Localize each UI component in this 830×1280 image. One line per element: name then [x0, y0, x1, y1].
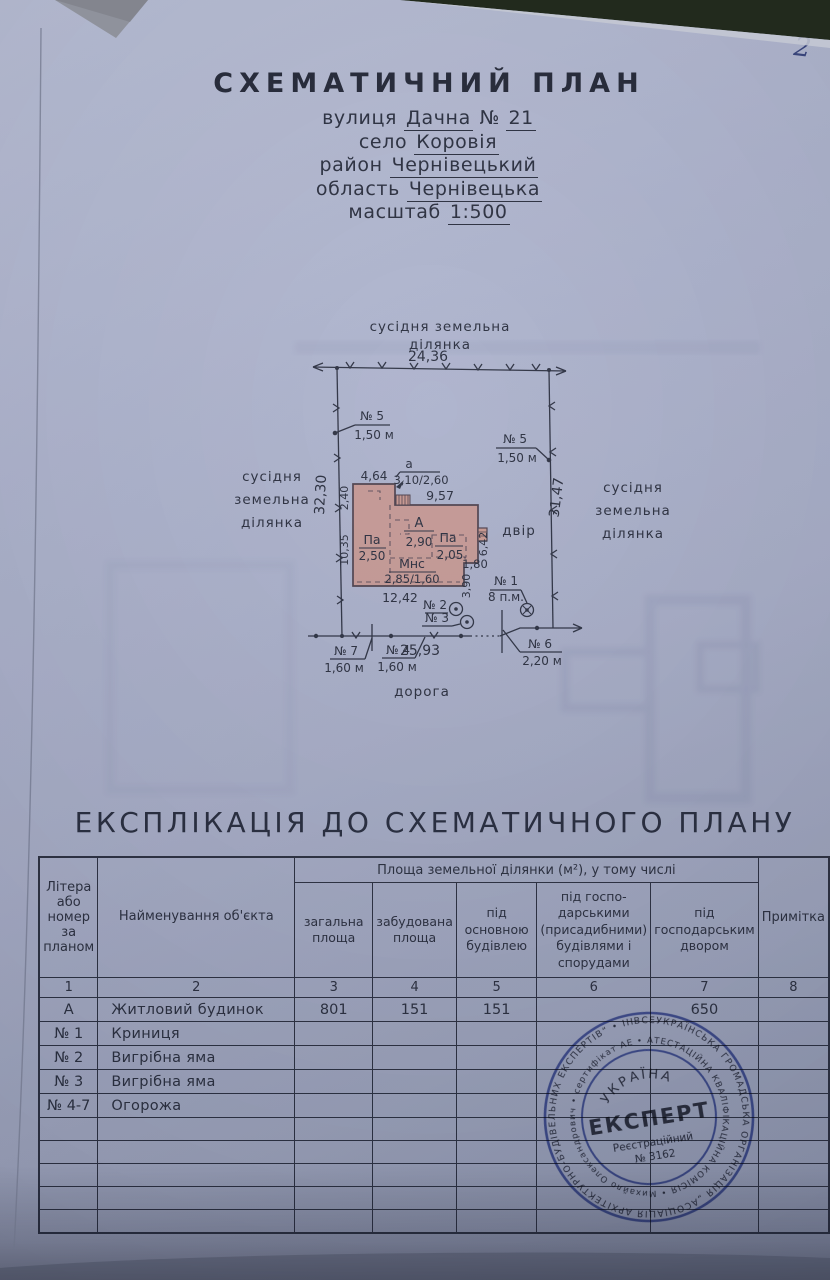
cell-object-name: Житловий будинок	[98, 998, 295, 1022]
cell-value: 151	[456, 998, 536, 1022]
neighbor-right-line3: ділянка	[602, 526, 664, 542]
document-title: СХЕМАТИЧНИЙ ПЛАН	[14, 68, 830, 99]
cell-value	[373, 1070, 457, 1094]
corner-fold	[55, 0, 148, 38]
header-col5: під основною будівлею	[456, 883, 536, 978]
room-pa-right: Па	[439, 530, 456, 545]
street-line: вулицяДачна № 21	[14, 107, 830, 131]
expert-stamp: ВСЕУКРАЇНСЬКА ГРОМАДСЬКА ОРГАНІЗАЦІЯ „АС…	[517, 985, 780, 1248]
house-annex-frac: 3,10/2,60	[393, 473, 448, 487]
house-step-h1: 1,80	[462, 557, 488, 571]
stamp-country: УКРАЇНА	[594, 1062, 678, 1108]
yard-label: двір	[502, 523, 536, 539]
cell-letter: А	[39, 998, 98, 1022]
room-a-val: 2,90	[406, 535, 433, 549]
house-bottom-width: 12,42	[382, 590, 418, 605]
cell-object-name: Криниця	[98, 1022, 295, 1046]
header-col3: загальна площа	[295, 883, 373, 978]
marker-n4-len: 1,60 м	[377, 660, 417, 674]
room-a: А	[415, 516, 424, 531]
cell-value	[456, 1094, 536, 1118]
district-line: районЧернівецький	[14, 154, 830, 178]
scale-label: масштаб	[348, 201, 440, 223]
marker-n3-no: № 3	[425, 611, 449, 625]
room-mns-val: 2,85/1,60	[384, 572, 439, 586]
house-annex-letter: а	[405, 457, 412, 471]
col-num: 6	[537, 978, 651, 998]
house-left-height: 10,35	[338, 534, 351, 566]
cell-value: 801	[295, 998, 373, 1022]
cell-object-name: Вигрібна яма	[98, 1046, 295, 1070]
house-step-h2: 3,90	[460, 574, 473, 599]
neighbor-right-line1: сусідня	[603, 480, 663, 496]
header-col8: Примітка	[758, 857, 829, 978]
region-line: областьЧернівецька	[14, 178, 830, 202]
site-plan-drawing: сусідня земельна ділянка сусідня земельн…	[0, 298, 830, 728]
marker-n1-len: 8 п.м.	[488, 590, 524, 604]
region-label: область	[316, 178, 400, 200]
room-pa-left-val: 2,50	[359, 549, 386, 563]
header-area-span: Площа земельної ділянки (м²), у тому чис…	[295, 857, 759, 883]
marker-n5-right-no: № 5	[503, 432, 527, 446]
cell-object-name: Огорожа	[98, 1094, 295, 1118]
street-number: 21	[506, 107, 535, 131]
village-label: село	[359, 131, 407, 153]
dim-left: 32,30	[312, 474, 330, 515]
explication-title: ЕКСПЛІКАЦІЯ ДО СХЕМАТИЧНОГО ПЛАНУ	[0, 806, 830, 839]
table-header-row-1: Літера або номер за планом Найменування …	[39, 857, 829, 883]
village-line: селоКоровія	[14, 131, 830, 155]
col-num: 5	[456, 978, 536, 998]
marker-n7-no: № 7	[334, 644, 358, 658]
marker-n6-len: 2,20 м	[522, 654, 562, 668]
marker-n5-left-no: № 5	[360, 409, 384, 423]
cell-value	[758, 1046, 829, 1070]
cell-letter: № 2	[39, 1046, 98, 1070]
room-pa-left: Па	[363, 532, 380, 547]
header-col1: Літера або номер за планом	[39, 857, 98, 978]
street-label: вулиця	[322, 107, 397, 129]
paper-edge-highlight	[400, 0, 830, 48]
background-foliage	[400, 0, 830, 40]
cell-letter: № 1	[39, 1022, 98, 1046]
cell-value	[373, 1046, 457, 1070]
house-annex-width: 4,64	[361, 469, 388, 483]
marker-n5-right-len: 1,50 м	[497, 451, 537, 465]
page-bottom-shadow	[0, 1253, 830, 1280]
header-col4: забудована площа	[373, 883, 457, 978]
scale-value: 1:500	[448, 201, 510, 225]
cell-value	[295, 1046, 373, 1070]
room-mns: Мнс	[399, 556, 425, 571]
house-main-width: 9,57	[426, 488, 454, 503]
house-right-height: 6,42	[477, 532, 490, 557]
cell-letter: № 3	[39, 1070, 98, 1094]
scale-line: масштаб1:500	[14, 201, 830, 225]
district-value: Чернівецький	[390, 154, 539, 178]
marker-n5-left-len: 1,50 м	[354, 428, 394, 442]
cell-object-name: Вигрібна яма	[98, 1070, 295, 1094]
marker-n6-no: № 6	[528, 637, 552, 651]
cell-value	[758, 1022, 829, 1046]
district-label: район	[320, 154, 383, 176]
corner-fold-shadow	[55, 0, 148, 22]
room-pa-right-val: 2,05	[437, 548, 464, 562]
neighbor-left-line3: ділянка	[241, 515, 303, 531]
street-value: Дачна	[404, 107, 473, 131]
document-photo: 2 СХЕМАТИЧНИЙ ПЛАН вулицяДачна № 21 село…	[0, 0, 830, 1280]
cell-value	[758, 1094, 829, 1118]
cell-value	[758, 998, 829, 1022]
col-num: 4	[373, 978, 457, 998]
col-num: 3	[295, 978, 373, 998]
cell-value	[295, 1070, 373, 1094]
cell-value	[295, 1094, 373, 1118]
marker-n1-no: № 1	[494, 574, 518, 588]
neighbor-left-line2: земельна	[234, 492, 310, 508]
col-num: 8	[758, 978, 829, 998]
cell-letter: № 4-7	[39, 1094, 98, 1118]
dim-right: 31,47	[547, 477, 568, 519]
stamp-main-word: ЕКСПЕРТ	[587, 1098, 712, 1141]
cell-value	[373, 1094, 457, 1118]
dim-top: 24,36	[408, 349, 448, 365]
col-num: 2	[98, 978, 295, 998]
header-col2: Найменування об'єкта	[98, 857, 295, 978]
neighbor-right-line2: земельна	[595, 503, 671, 519]
cell-value	[373, 1022, 457, 1046]
cell-value	[295, 1022, 373, 1046]
marker-n2-no: № 2	[423, 598, 447, 612]
road-label: дорога	[394, 684, 450, 700]
header-col7: під господарським двором	[651, 883, 758, 978]
marker-n7-len: 1,60 м	[324, 661, 364, 675]
marker-n4-no: № 4	[386, 643, 410, 657]
neighbor-left-line1: сусідня	[242, 469, 302, 485]
page-number: 2	[792, 31, 813, 64]
cell-value	[758, 1070, 829, 1094]
cell-value: 151	[373, 998, 457, 1022]
street-num-sign: №	[479, 107, 499, 129]
neighbor-top-line1: сусідня земельна	[370, 319, 511, 335]
house-annex-height: 2,40	[338, 486, 351, 511]
village-value: Коровія	[414, 131, 499, 155]
header-col6: під госпо-дарськими (присадибними) будів…	[537, 883, 651, 978]
col-num: 1	[39, 978, 98, 998]
region-value: Чернівецька	[407, 178, 542, 202]
title-block: СХЕМАТИЧНИЙ ПЛАН вулицяДачна № 21 селоКо…	[14, 68, 830, 225]
